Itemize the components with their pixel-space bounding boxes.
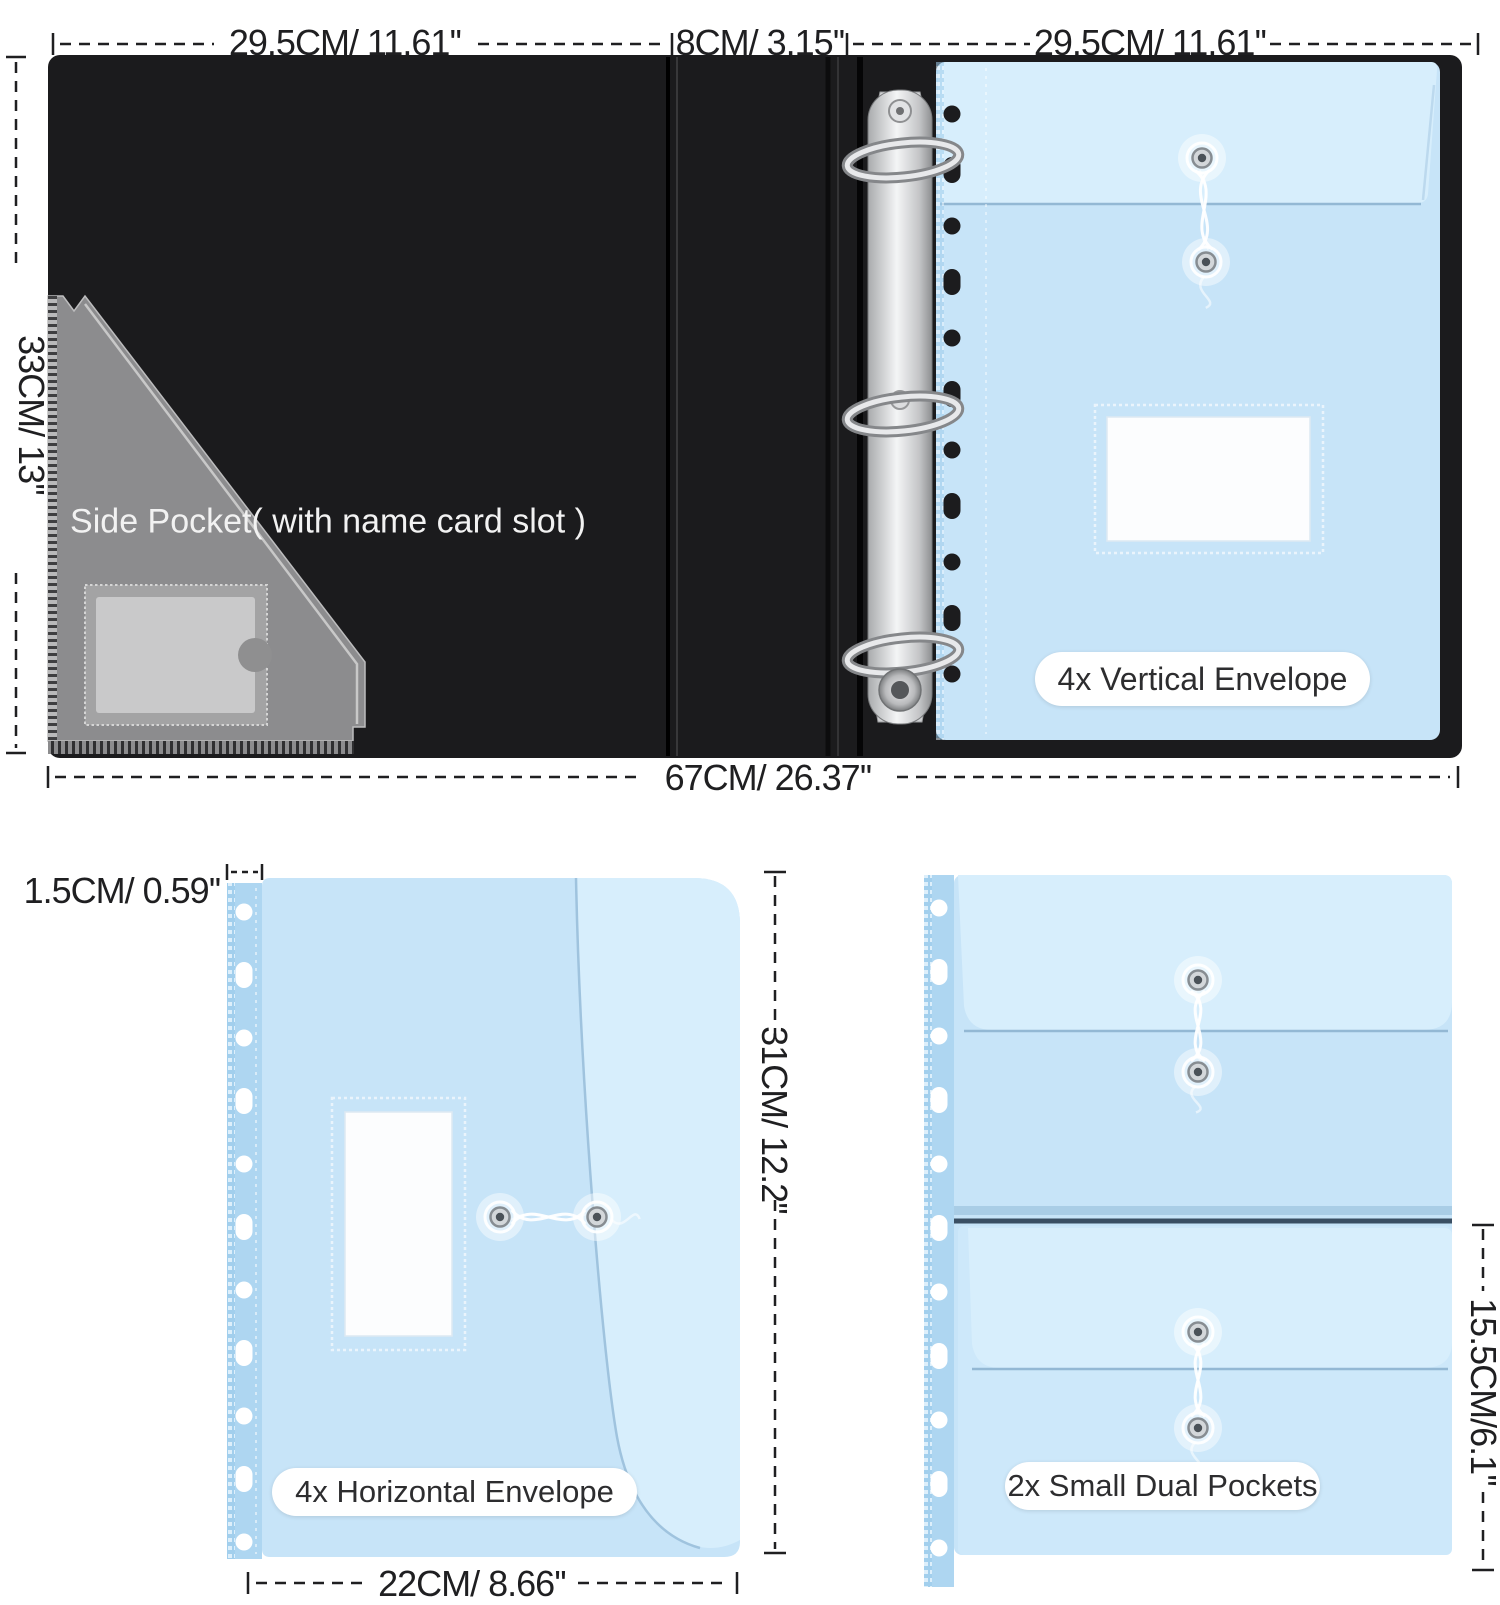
side-pocket-label: Side Pocket( with name card slot ) xyxy=(70,503,586,542)
name-card-slot xyxy=(85,585,272,725)
dim-width-left: 29.5CM/ 11.61'' xyxy=(229,22,461,64)
vertical-envelope-badge-label: 4x Vertical Envelope xyxy=(1058,661,1348,698)
dim-binding-edge: 1.5CM/ 0.59'' xyxy=(24,870,221,912)
horizontal-envelope-badge-label: 4x Horizontal Envelope xyxy=(295,1474,614,1510)
vertical-envelope-card xyxy=(1095,405,1323,553)
dim-height-pocket: 15.5CM/6.1'' xyxy=(1462,1298,1500,1486)
dim-width-envelope: 22CM/ 8.66'' xyxy=(378,1563,566,1605)
dim-width-spine: 8CM/ 3.15'' xyxy=(676,22,845,64)
dual-pockets-badge-label: 2x Small Dual Pockets xyxy=(1007,1468,1317,1504)
dim-width-right: 29.5CM/ 11.61'' xyxy=(1034,22,1266,64)
dim-height-binder: 33CM/ 13'' xyxy=(10,335,52,495)
dim-height-envelope: 31CM/ 12.2'' xyxy=(753,1026,795,1214)
horizontal-envelope-badge: 4x Horizontal Envelope xyxy=(272,1468,637,1516)
diagram-graphics xyxy=(0,0,1500,1605)
dual-pockets-badge: 2x Small Dual Pockets xyxy=(1005,1462,1320,1510)
horizontal-envelope-card xyxy=(332,1098,465,1350)
product-dimension-diagram: 29.5CM/ 11.61'' 8CM/ 3.15'' 29.5CM/ 11.6… xyxy=(0,0,1500,1605)
dim-width-total: 67CM/ 26.37'' xyxy=(665,757,872,799)
vertical-envelope-badge: 4x Vertical Envelope xyxy=(1035,652,1370,706)
